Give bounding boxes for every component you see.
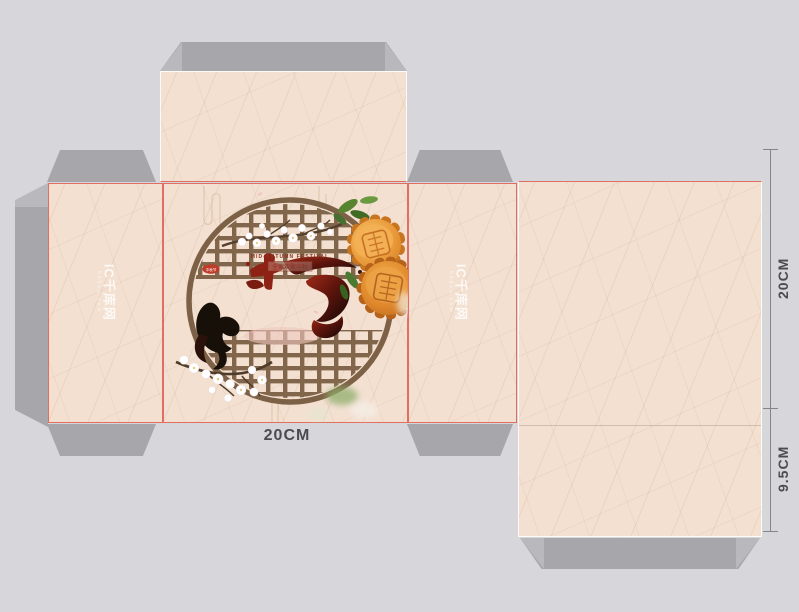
back-panel-crease [519, 425, 761, 426]
tagline-cn: 全家欢聚中秋 [272, 263, 308, 271]
festival-badge: 中秋节 [202, 264, 219, 274]
lid-top-panel [160, 71, 407, 182]
dimension-label-depth: 9.5CM [775, 448, 791, 492]
lid-tuck-flap [160, 42, 407, 71]
left-side-top-flap [47, 150, 156, 182]
left-side-panel [48, 183, 163, 423]
dimension-label-height: 20CM [775, 259, 791, 299]
dimension-label-width: 20CM [252, 427, 322, 445]
tagline-en: MID-AUTUMN FESTIVAL [251, 254, 330, 260]
flap-fold-facet [736, 538, 760, 569]
dimension-tick-bottom [763, 531, 778, 532]
back-bottom-flap [520, 538, 760, 569]
left-side-bottom-flap [47, 424, 156, 456]
mid-side-top-flap [407, 150, 513, 182]
dimension-tick-top [763, 149, 778, 150]
flap-fold-facet [385, 42, 407, 71]
mid-side-bottom-flap [407, 424, 513, 456]
flap-fold-facet [15, 183, 48, 207]
badge-label: 中秋节 [206, 267, 217, 272]
dimension-tick-middle [763, 408, 778, 409]
ink-wash [244, 327, 320, 345]
dieline-canvas: 中秋 [0, 0, 799, 612]
flap-fold-facet [160, 42, 182, 71]
front-panel-artwork: MID-AUTUMN FESTIVAL 全家欢聚中秋 中秋节 [164, 184, 409, 424]
dimension-vertical-line [770, 149, 771, 532]
left-glue-flap [15, 183, 48, 427]
back-panel [518, 181, 762, 537]
flap-fold-facet [520, 538, 544, 569]
mid-side-panel [408, 183, 517, 423]
front-panel: 中秋 [163, 183, 408, 423]
